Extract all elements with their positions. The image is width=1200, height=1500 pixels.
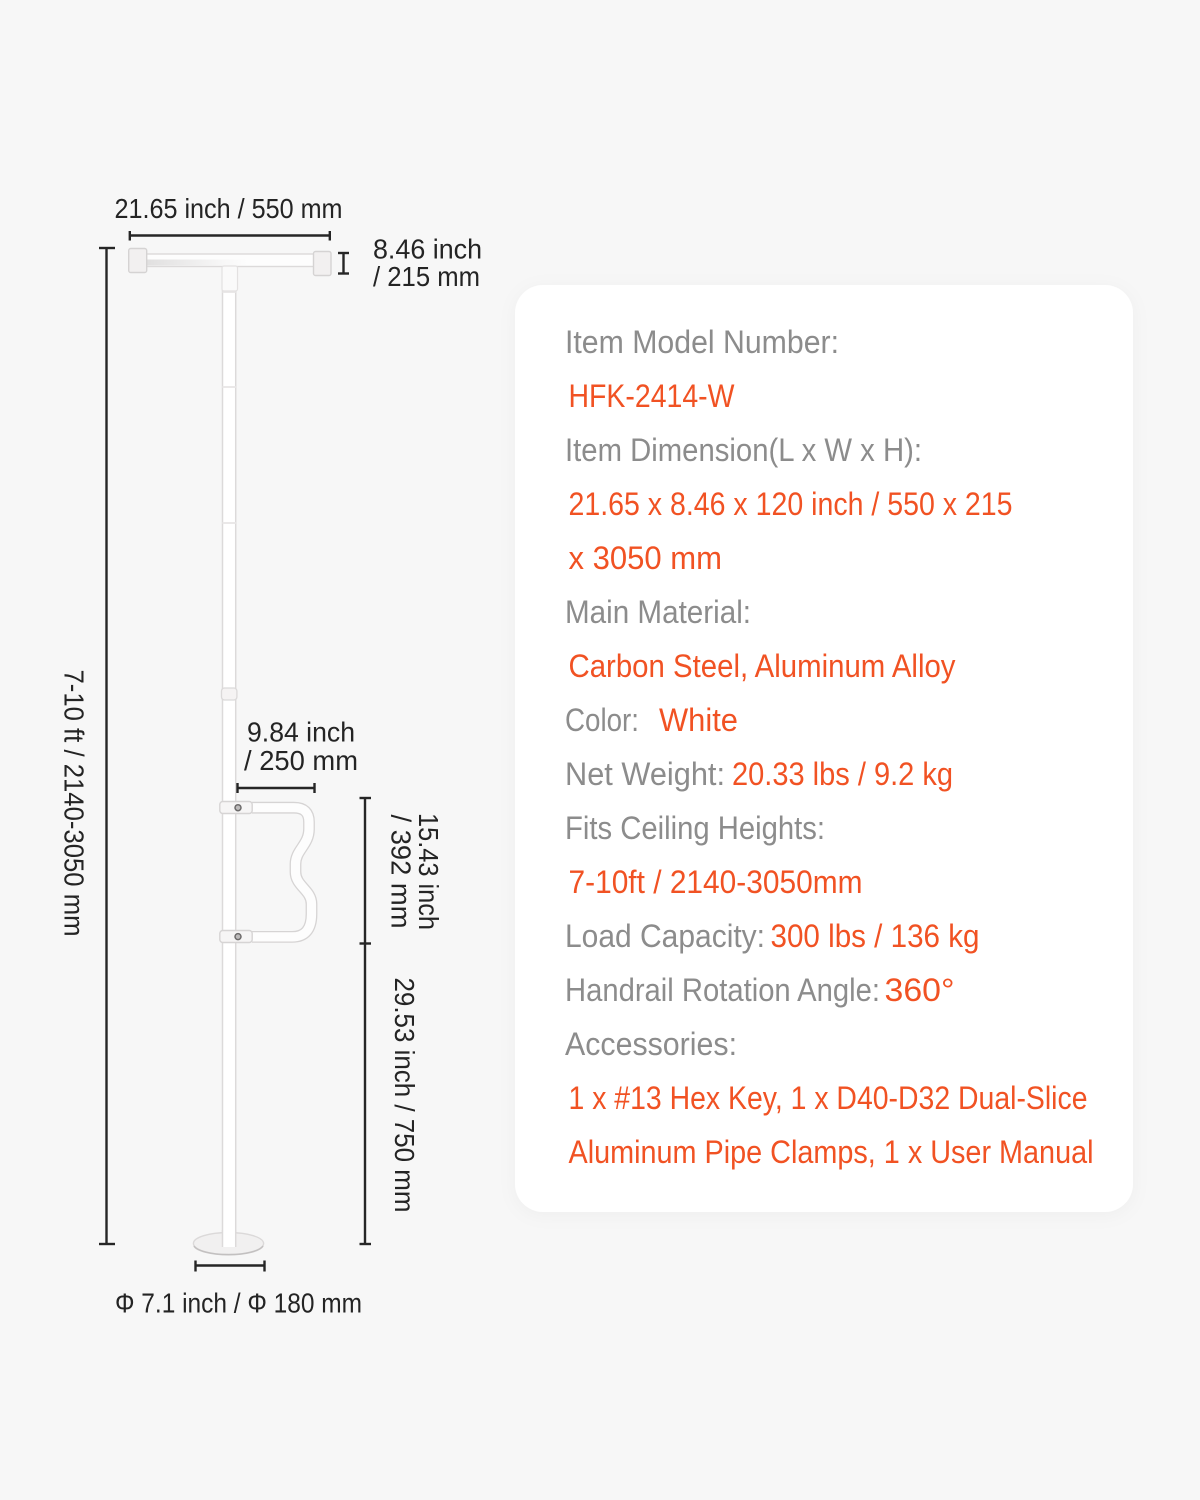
svg-text:29.53 inch / 750 mm: 29.53 inch / 750 mm [389,978,420,1213]
svg-text:Aluminum Pipe Clamps, 1 x User: Aluminum Pipe Clamps, 1 x User Manual [569,1134,1094,1170]
svg-text:Item Model Number:: Item Model Number: [565,324,839,360]
svg-text:Fits Ceiling Heights:: Fits Ceiling Heights: [565,810,825,846]
svg-text:Color:: Color: [565,702,639,738]
svg-text:/ 250 mm: / 250 mm [244,745,358,776]
svg-text:20.33 lbs / 9.2 kg: 20.33 lbs / 9.2 kg [732,756,953,792]
svg-text:Carbon Steel, Aluminum Alloy: Carbon Steel, Aluminum Alloy [569,648,956,684]
svg-text:x 3050 mm: x 3050 mm [569,540,723,576]
svg-text:Main Material:: Main Material: [565,594,751,630]
svg-text:White: White [659,702,738,738]
svg-text:300 lbs / 136 kg: 300 lbs / 136 kg [771,918,980,954]
svg-text:Accessories:: Accessories: [565,1026,737,1062]
svg-text:8.46 inch: 8.46 inch [373,234,482,265]
svg-text:21.65 x 8.46 x 120 inch / 550: 21.65 x 8.46 x 120 inch / 550 x 215 [569,486,1013,522]
svg-text:/ 215 mm: / 215 mm [373,261,480,292]
svg-text:15.43 inch: 15.43 inch [413,813,444,930]
svg-text:HFK-2414-W: HFK-2414-W [569,378,736,414]
svg-text:Net Weight:: Net Weight: [565,756,725,792]
svg-text:7-10ft / 2140-3050mm: 7-10ft / 2140-3050mm [569,864,863,900]
svg-text:Item Dimension(L x W x H):: Item Dimension(L x W x H): [565,432,922,468]
svg-text:Handrail Rotation Angle:: Handrail Rotation Angle: [565,972,880,1008]
svg-text:/ 392 mm: / 392 mm [386,815,417,929]
svg-text:1 x #13 Hex Key, 1 x D40-D32 D: 1 x #13 Hex Key, 1 x D40-D32 Dual-Slice [569,1080,1088,1116]
svg-text:21.65 inch / 550 mm: 21.65 inch / 550 mm [115,193,343,224]
svg-text:Load Capacity:: Load Capacity: [565,918,765,954]
svg-text:9.84 inch: 9.84 inch [247,716,355,747]
svg-text:360°: 360° [885,972,955,1008]
svg-text:Φ 7.1 inch / Φ 180 mm: Φ 7.1 inch / Φ 180 mm [115,1288,362,1319]
svg-text:7-10 ft / 2140-3050 mm: 7-10 ft / 2140-3050 mm [59,670,90,937]
